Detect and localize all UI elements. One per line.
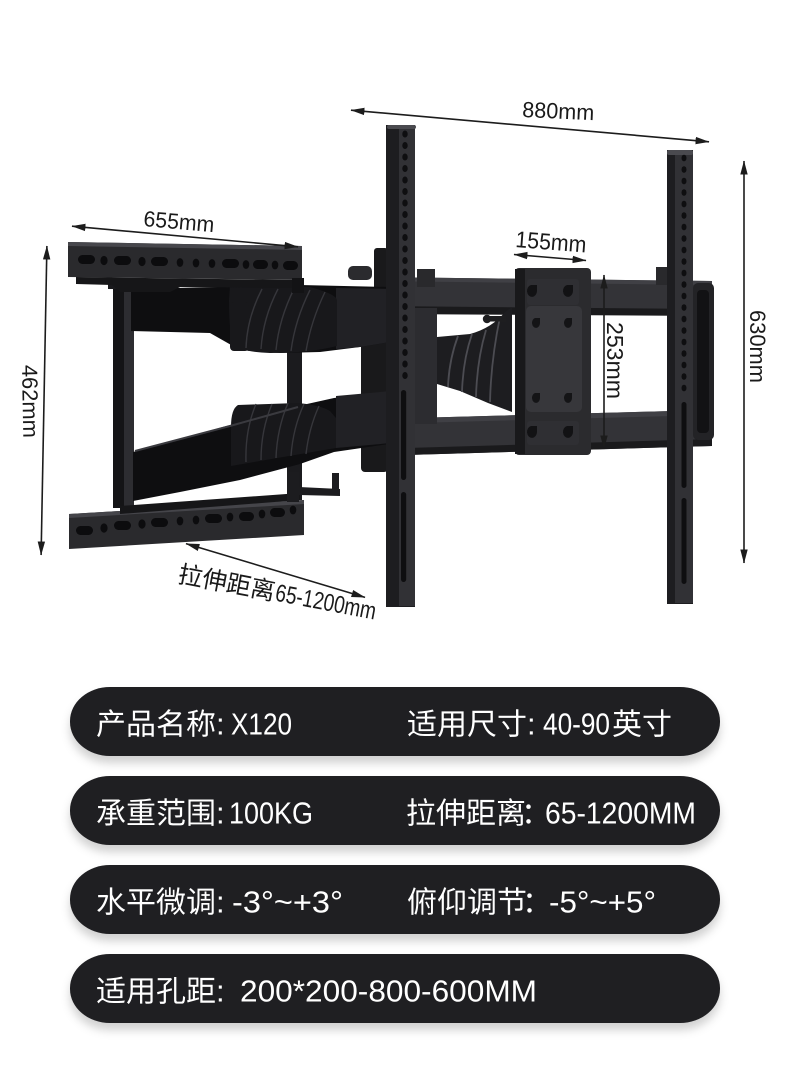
svg-text:100KG: 100KG	[229, 796, 313, 831]
svg-text:200*200-800-600MM: 200*200-800-600MM	[240, 974, 537, 1009]
svg-text:630mm: 630mm	[745, 310, 770, 383]
svg-text::: :	[216, 796, 225, 831]
svg-text:-3°~+3°: -3°~+3°	[232, 885, 343, 920]
svg-text:40-90: 40-90	[543, 707, 610, 742]
svg-text::: :	[216, 885, 225, 920]
svg-text::: :	[216, 707, 225, 742]
svg-text::: :	[216, 974, 225, 1009]
svg-text:65-1200mm: 65-1200mm	[273, 580, 378, 626]
svg-text:155mm: 155mm	[515, 226, 588, 257]
svg-text:655mm: 655mm	[143, 206, 216, 237]
svg-text:253mm: 253mm	[602, 322, 628, 399]
svg-text:-5°~+5°: -5°~+5°	[549, 885, 656, 920]
svg-text:X120: X120	[231, 707, 292, 742]
svg-text::: :	[527, 707, 536, 742]
svg-text:462mm: 462mm	[17, 365, 43, 438]
svg-text:880mm: 880mm	[522, 97, 595, 125]
svg-text:65-1200MM: 65-1200MM	[545, 796, 696, 831]
